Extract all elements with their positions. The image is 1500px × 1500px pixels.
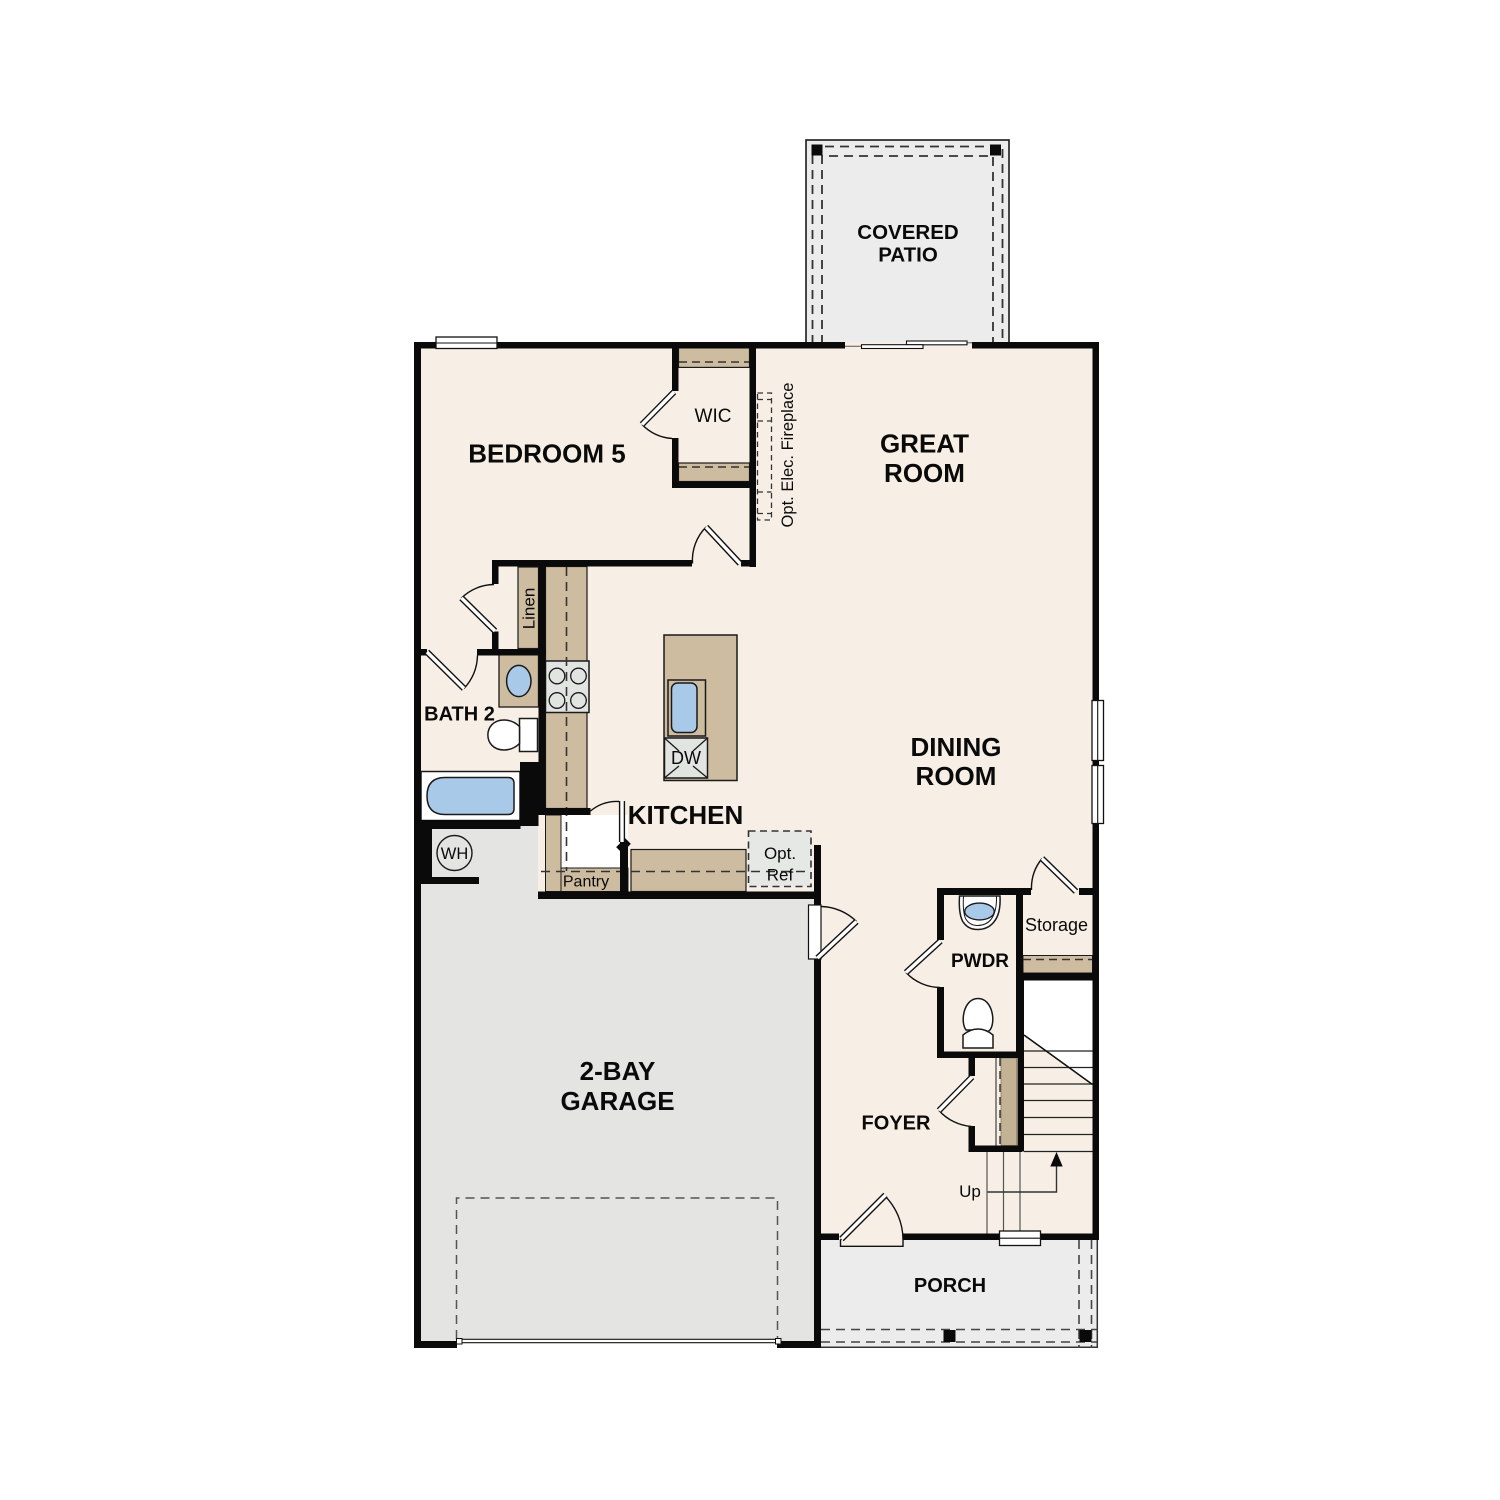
svg-text:Linen: Linen xyxy=(520,588,539,630)
svg-text:ROOM: ROOM xyxy=(916,761,997,791)
svg-text:PWDR: PWDR xyxy=(951,951,1009,972)
svg-text:PATIO: PATIO xyxy=(878,244,938,267)
svg-text:ROOM: ROOM xyxy=(884,458,965,488)
svg-text:BATH 2: BATH 2 xyxy=(424,704,495,726)
svg-text:Opt. Elec. Fireplace: Opt. Elec. Fireplace xyxy=(779,383,797,528)
svg-text:WIC: WIC xyxy=(695,406,732,427)
svg-text:Ref: Ref xyxy=(767,866,794,885)
svg-text:DINING: DINING xyxy=(911,732,1002,762)
svg-text:WH: WH xyxy=(441,845,469,863)
svg-text:GARAGE: GARAGE xyxy=(560,1086,674,1116)
svg-text:Up: Up xyxy=(959,1182,981,1201)
svg-text:KITCHEN: KITCHEN xyxy=(628,800,744,830)
svg-text:Storage: Storage xyxy=(1025,915,1088,935)
svg-text:COVERED: COVERED xyxy=(857,221,958,244)
svg-text:Opt.: Opt. xyxy=(764,844,796,863)
svg-text:FOYER: FOYER xyxy=(862,1113,931,1135)
svg-text:PORCH: PORCH xyxy=(914,1275,986,1297)
svg-text:DW: DW xyxy=(671,748,701,768)
svg-text:Pantry: Pantry xyxy=(563,874,609,891)
svg-text:BEDROOM 5: BEDROOM 5 xyxy=(468,439,625,469)
svg-text:GREAT: GREAT xyxy=(880,429,969,459)
svg-text:2-BAY: 2-BAY xyxy=(580,1056,656,1086)
